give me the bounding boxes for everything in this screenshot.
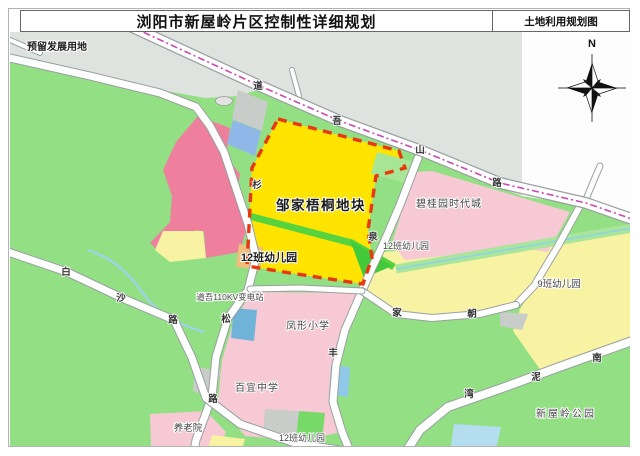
road-name-char: 松 xyxy=(221,313,231,325)
road-name-char: 白 xyxy=(61,266,71,278)
road-name-char: 家 xyxy=(392,307,402,319)
road-name-char: 路 xyxy=(492,177,502,189)
site-label: 新屋岭公园 xyxy=(536,407,596,420)
road-name-char: 泉 xyxy=(367,231,378,243)
pale-blue-parcel xyxy=(451,424,501,446)
road-marker-ellipse xyxy=(216,97,233,106)
road-name-char: 泥 xyxy=(531,371,541,383)
site-label: 百宜中学 xyxy=(235,381,279,394)
site-label: 养老院 xyxy=(174,422,203,434)
road-name-char: 路 xyxy=(208,393,218,405)
site-label: 邹家梧桐地块 xyxy=(275,197,366,213)
road-name-char: 湾 xyxy=(464,388,474,400)
land-use-map: 预留发展用地邹家梧桐地块12班幼儿园12班幼儿园碧桂园时代城9班幼儿园道吾110… xyxy=(10,32,630,446)
road-name-char: 杉 xyxy=(252,179,262,191)
site-label: 凤形小学 xyxy=(286,319,330,332)
road-name-char: 南 xyxy=(592,352,602,364)
road-name-char: 路 xyxy=(168,314,178,326)
road-name-char: 丰 xyxy=(328,347,338,359)
road-name-char: 道 xyxy=(253,80,263,92)
road-name-char: 山 xyxy=(415,144,425,156)
site-label: 12班幼儿园 xyxy=(241,250,297,264)
site-label: 碧桂园时代城 xyxy=(416,197,482,210)
title-bar: 浏阳市新屋岭片区控制性详细规划 土地利用规划图 xyxy=(20,10,630,32)
road-name-char: 吾 xyxy=(332,116,342,127)
site-label: 12班幼儿园 xyxy=(279,432,325,443)
site-label: 12班幼儿园 xyxy=(383,240,429,251)
site-label: 预留发展用地 xyxy=(27,40,87,53)
site-label: 道吾110KV变电站 xyxy=(196,292,264,302)
site-label: 9班幼儿园 xyxy=(537,278,580,290)
map-type-label: 土地利用规划图 xyxy=(492,11,629,31)
road-name-char: 沙 xyxy=(116,293,126,304)
planning-map-page: 浏阳市新屋岭片区控制性详细规划 土地利用规划图 N xyxy=(0,0,640,456)
compass-north-label: N xyxy=(582,38,602,50)
road-name-char: 朝 xyxy=(467,308,477,320)
page-title: 浏阳市新屋岭片区控制性详细规划 xyxy=(21,11,492,31)
